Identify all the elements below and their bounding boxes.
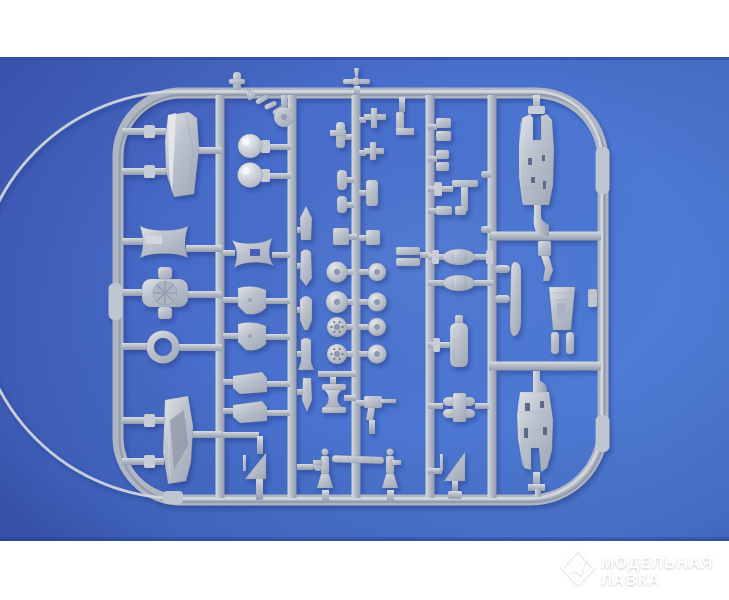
watermark-line2: ЛАВКА — [601, 572, 661, 589]
part-mirror-plate-a — [140, 226, 188, 258]
runner-v4 — [426, 95, 435, 498]
top-white-band — [0, 0, 729, 57]
runner-v2 — [288, 95, 297, 498]
runner-h2 — [489, 362, 601, 371]
watermark-line1: МОДЕЛЬНАЯ — [601, 555, 714, 572]
part-propeller-blade — [510, 262, 521, 336]
sprue-photo: Grey injection-moulded plastic model kit… — [0, 0, 729, 600]
part-cowling-lower-left — [163, 396, 193, 484]
part-cowling-upper-left — [165, 112, 199, 197]
backdrop-bottom-edge — [0, 538, 729, 542]
backdrop-top-edge — [0, 57, 729, 60]
runner-v5 — [488, 95, 497, 498]
photo-stage: Grey injection-moulded plastic model kit… — [0, 0, 729, 600]
